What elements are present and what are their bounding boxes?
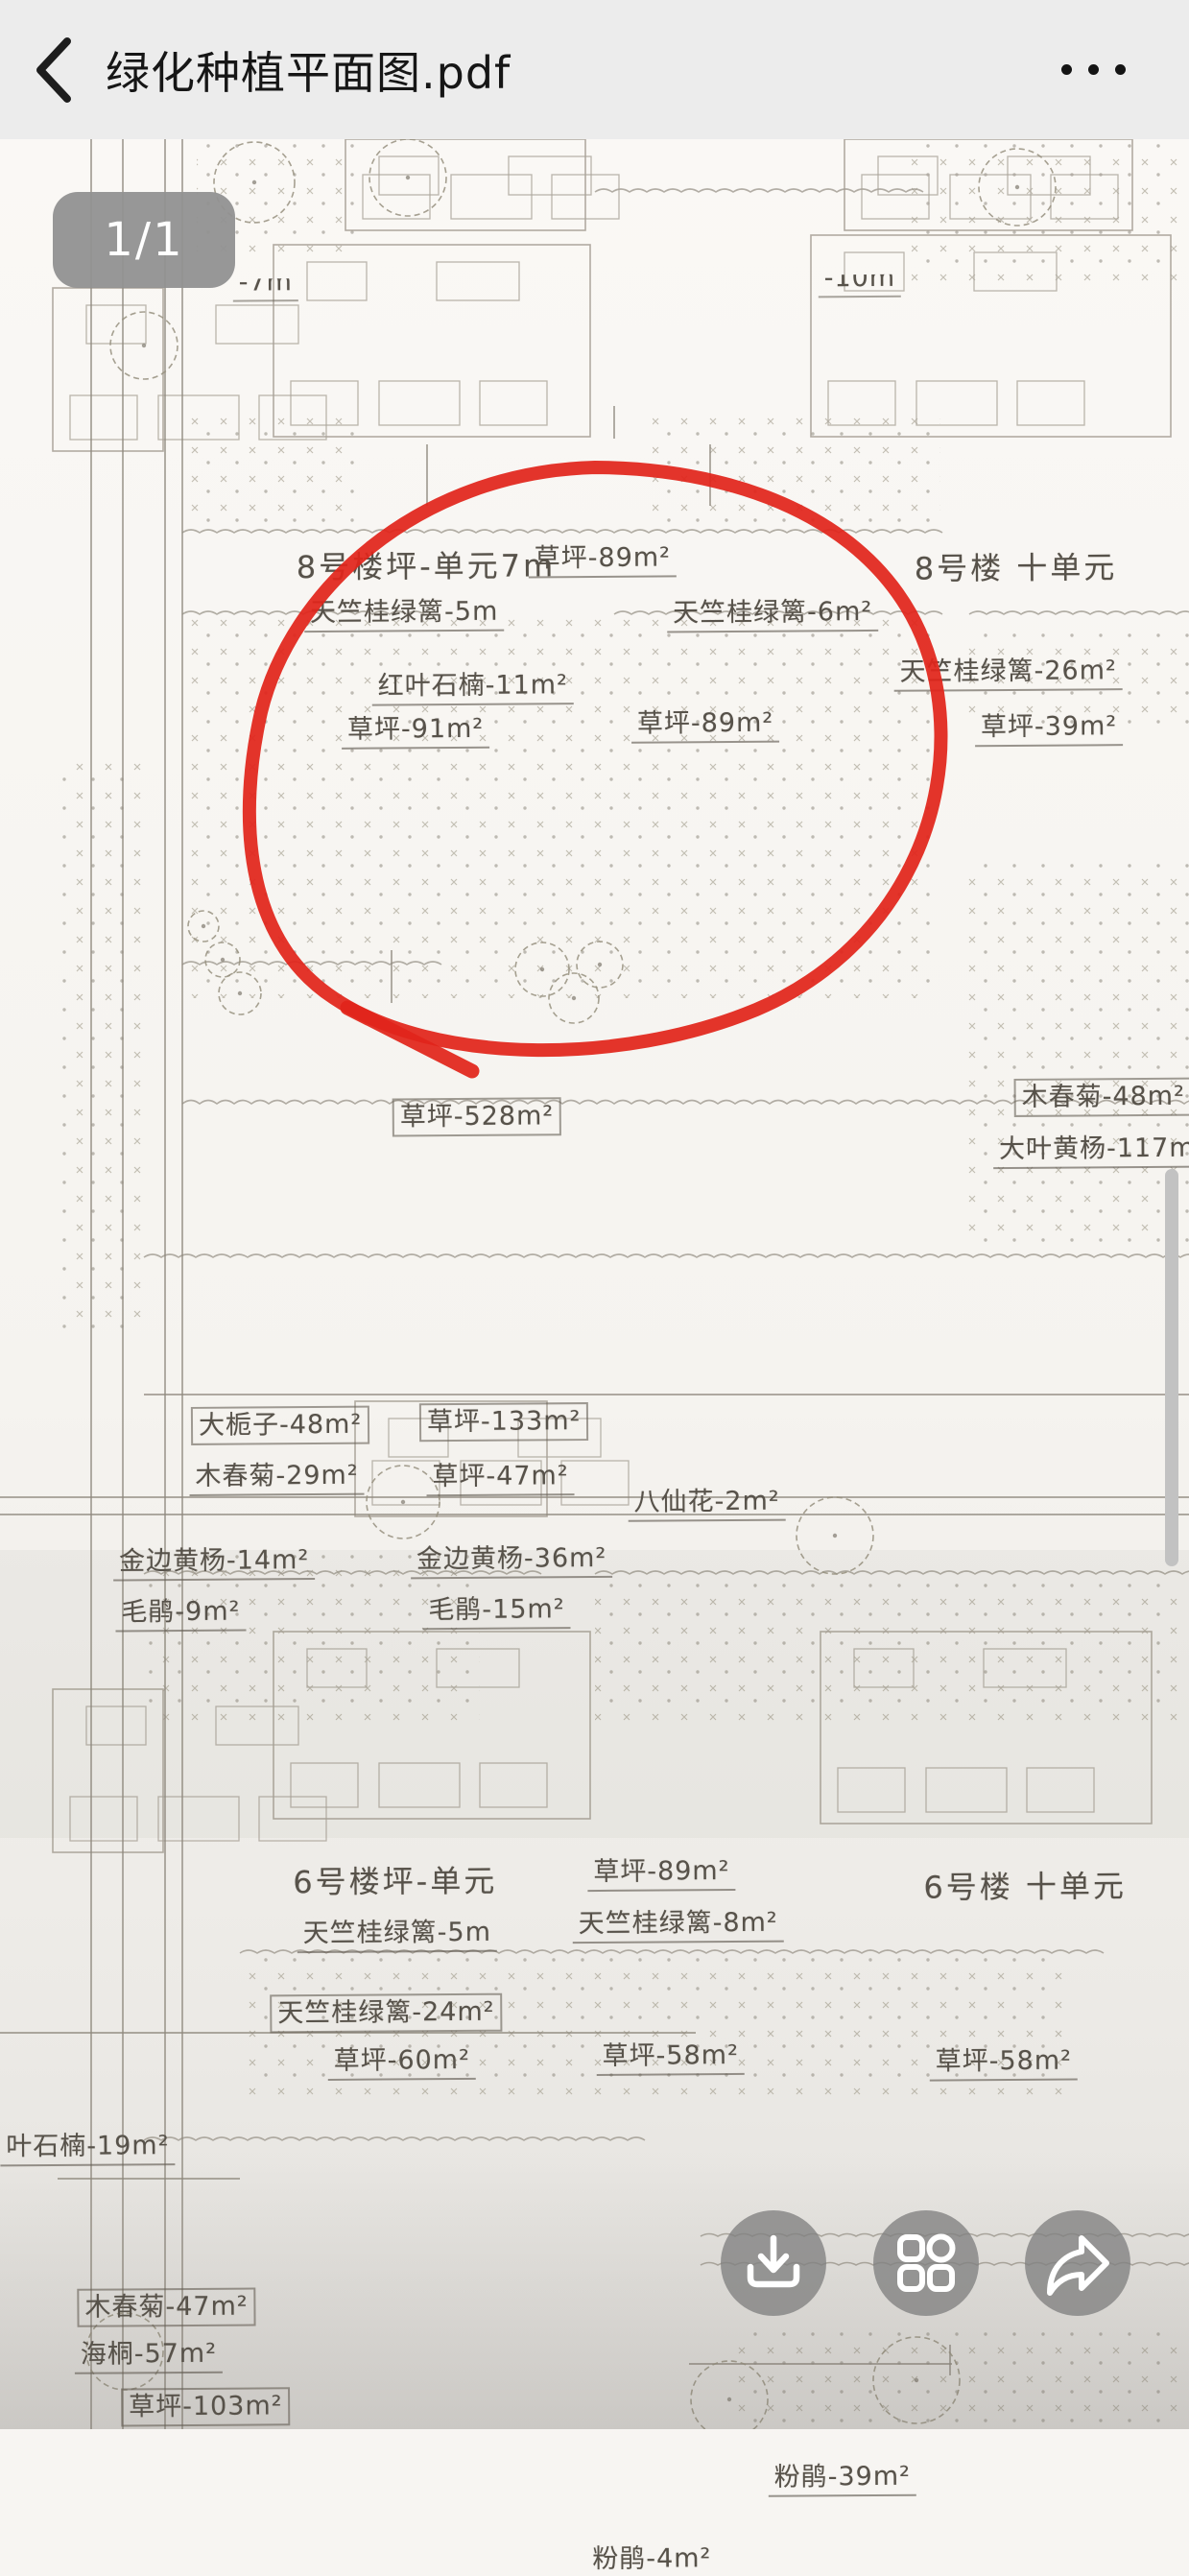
plan-label: 草坪-39m²: [975, 709, 1123, 747]
share-forward-icon: [1044, 2230, 1111, 2297]
plan-label: 8号楼坪-单元7m: [291, 546, 562, 588]
back-button[interactable]: [0, 0, 106, 139]
plan-label: 6号楼坪-单元: [287, 1862, 503, 1903]
plan-label: 草坪-528m²: [392, 1097, 562, 1136]
download-button[interactable]: [721, 2210, 826, 2316]
ellipsis-icon: [1061, 64, 1072, 75]
plan-label: 天竺桂绿篱-6m²: [667, 595, 878, 633]
plan-label: 8号楼 十单元: [909, 548, 1124, 589]
bottom-toolbar: [0, 2210, 1189, 2316]
share-button[interactable]: [1025, 2210, 1130, 2316]
page-indicator-badge: 1/1: [53, 192, 235, 288]
plan-label: 粉鹃-39m²: [769, 2460, 916, 2497]
plan-label: -7m: [233, 278, 298, 301]
more-menu-button[interactable]: [1035, 0, 1151, 139]
plan-label: 草坪-60m²: [328, 2043, 476, 2081]
apps-grid-button[interactable]: [873, 2210, 979, 2316]
plan-label: 草坪-89m²: [587, 1854, 735, 1892]
plan-label: 草坪-58m²: [930, 2044, 1078, 2082]
plan-label: 草坪-103m²: [121, 2387, 291, 2426]
plan-label: 大栀子-48m²: [191, 1406, 370, 1445]
plan-label: 毛鹃-15m²: [422, 1592, 570, 1630]
plan-label: 草坪-47m²: [426, 1459, 574, 1496]
plan-label: 金边黄杨-14m²: [113, 1543, 315, 1582]
plan-label: 大叶黄杨-117m²: [993, 1132, 1189, 1170]
plan-label: 天竺桂绿篱-5m: [297, 1916, 497, 1953]
plan-label: 草坪-89m²: [529, 540, 677, 578]
plan-label: 草坪-91m²: [342, 712, 489, 750]
plan-label: 天竺桂绿篱-26m²: [893, 654, 1122, 692]
plan-label: 草坪-89m²: [631, 706, 779, 744]
plan-label: 木春菊-48m²: [1014, 1078, 1189, 1117]
plan-label: 草坪-58m²: [596, 2039, 744, 2076]
plan-label: 八仙花-2m²: [628, 1485, 785, 1522]
plan-label: 天竺桂绿篱-24m²: [270, 1993, 503, 2034]
document-title: 绿化种植平面图.pdf: [106, 38, 511, 102]
plan-label: 6号楼 十单元: [917, 1867, 1132, 1908]
plan-label: 金边黄杨-36m²: [411, 1541, 612, 1580]
pdf-page[interactable]: -7m-10m8号楼坪-单元7m草坪-89m²8号楼 十单元天竺桂绿篱-5m天竺…: [0, 139, 1189, 2429]
chevron-left-icon: [31, 36, 75, 105]
header-bar: 绿化种植平面图.pdf: [0, 0, 1189, 139]
plan-label: 草坪-133m²: [419, 1402, 589, 1442]
download-icon: [740, 2230, 807, 2297]
plan-label: 天竺桂绿篱-8m²: [573, 1906, 784, 1944]
plan-label: -10m: [819, 274, 902, 298]
grid-icon: [892, 2230, 960, 2297]
plan-label-layer: -7m-10m8号楼坪-单元7m草坪-89m²8号楼 十单元天竺桂绿篱-5m天竺…: [0, 135, 1189, 2434]
plan-label: 叶石楠-19m²: [0, 2129, 175, 2166]
plan-label: 红叶石楠-11m²: [372, 668, 574, 706]
plan-label: 粉鹃-4m²: [586, 2541, 717, 2572]
plan-label: 毛鹃-9m²: [115, 1595, 246, 1633]
plan-label: 木春菊-29m²: [189, 1459, 364, 1496]
plan-label: 天竺桂绿篱-5m: [304, 595, 504, 632]
plan-label: 海桐-57m²: [75, 2337, 223, 2374]
vertical-scrollbar[interactable]: [1165, 1169, 1178, 1566]
